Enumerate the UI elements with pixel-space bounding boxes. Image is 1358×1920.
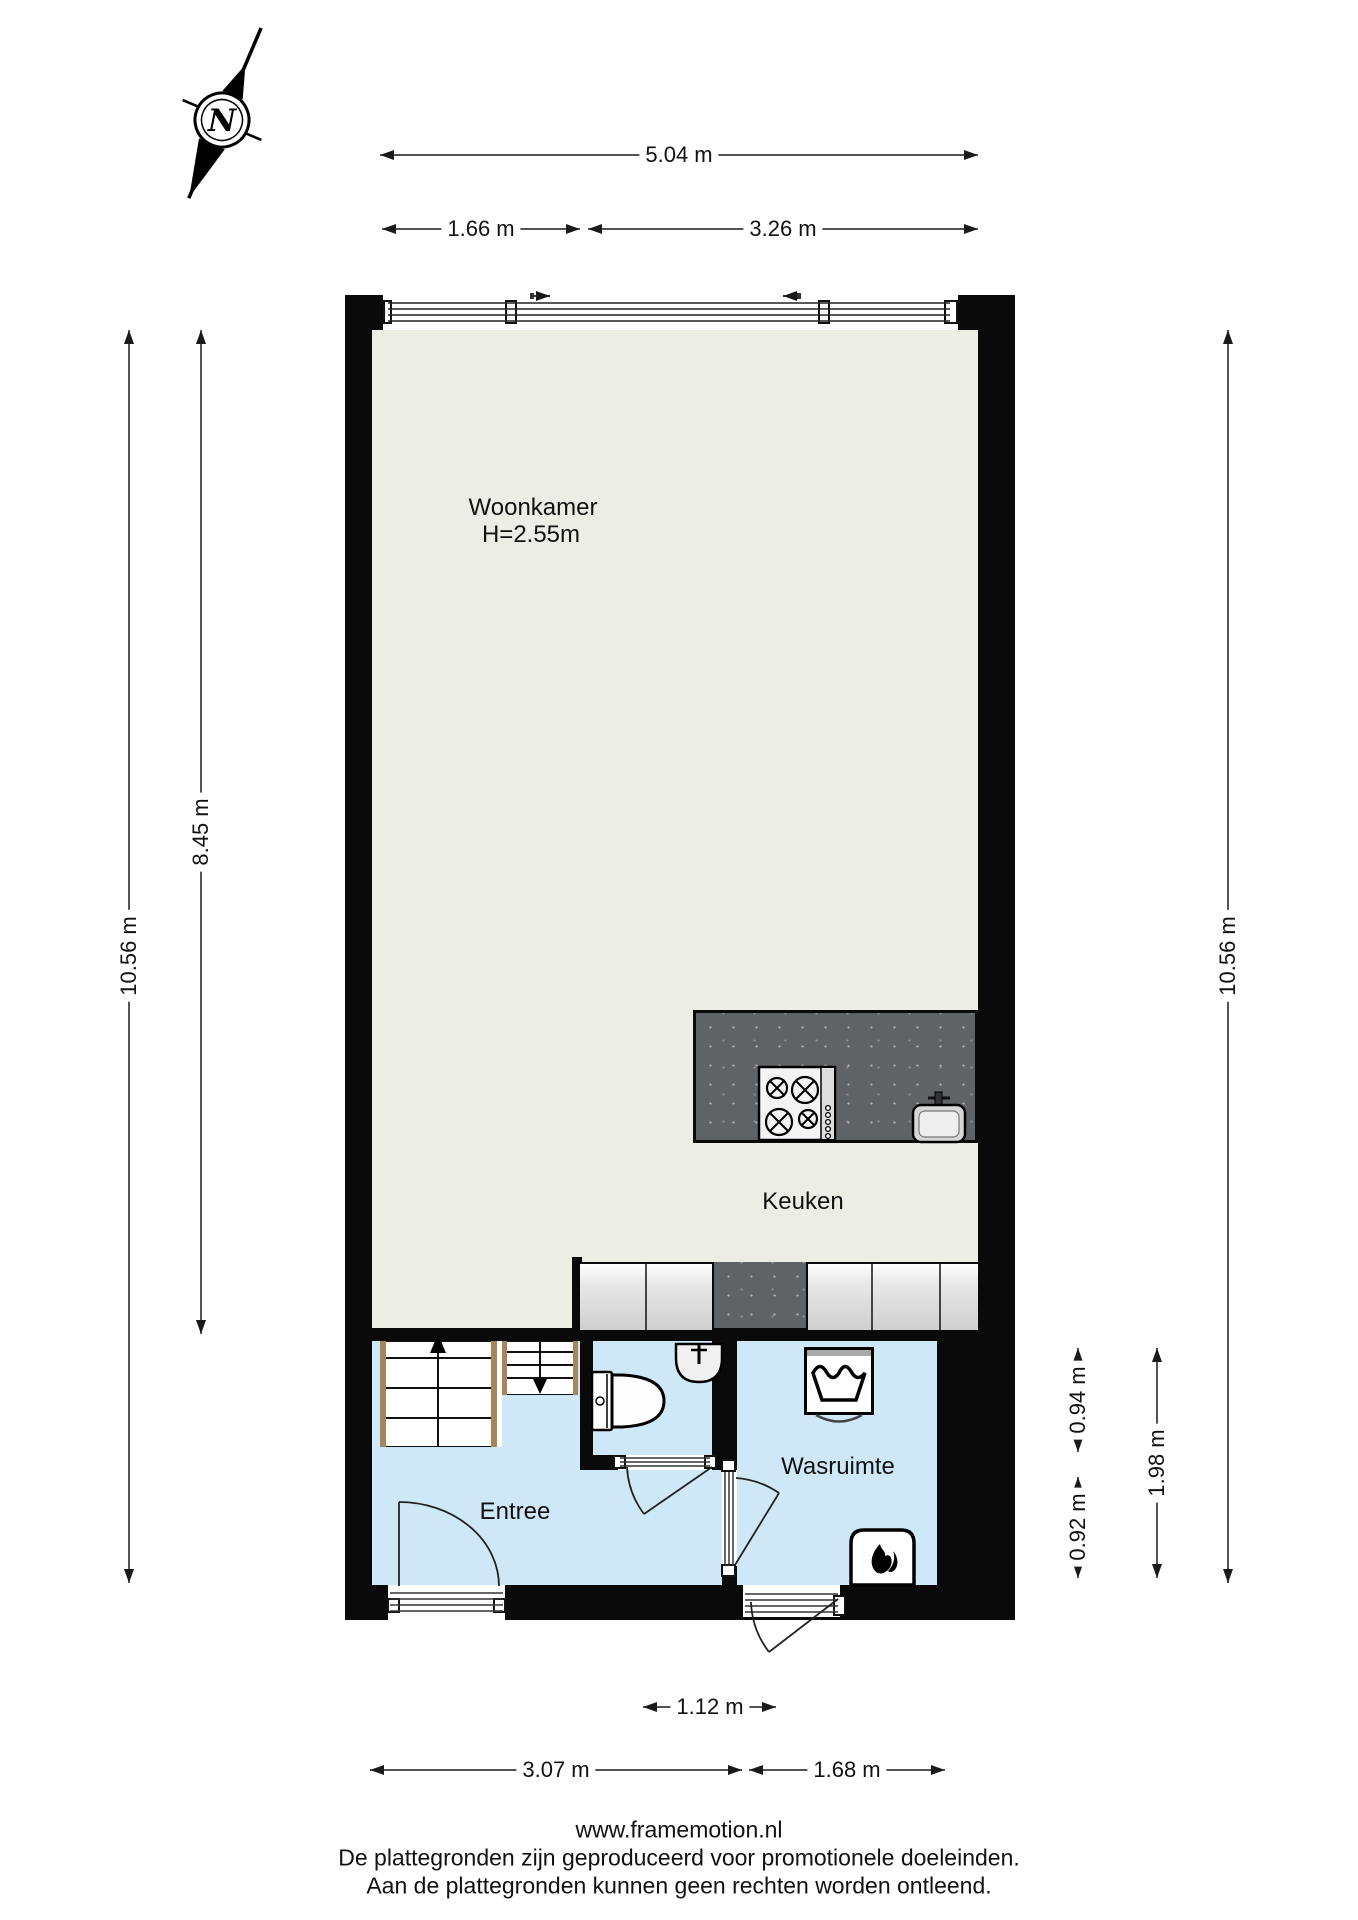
compass-north-label: N bbox=[208, 103, 236, 139]
door-jamb-icon bbox=[704, 1455, 717, 1469]
dim-right-total: 10.56 m bbox=[1215, 910, 1241, 1002]
dim-bottom-center: 1.12 m bbox=[670, 1694, 749, 1720]
back-door-opening bbox=[743, 1585, 840, 1617]
stairs-left-flight bbox=[380, 1341, 497, 1447]
dim-left-inner: 8.45 m bbox=[188, 792, 214, 871]
dim-top-right: 3.26 m bbox=[743, 216, 822, 242]
kitchen-island-counter bbox=[693, 1010, 978, 1143]
room-label-ceiling-height: H=2.55m bbox=[482, 521, 580, 549]
kitchen-counter-dark-cell bbox=[712, 1262, 808, 1330]
dim-bottom-right: 1.68 m bbox=[807, 1757, 886, 1783]
wall-toilet-right bbox=[712, 1341, 737, 1470]
dim-top-total: 5.04 m bbox=[639, 142, 718, 168]
floorplan-page: N Woonkamer H=2.55m Keuken Entree Wasrui… bbox=[0, 0, 1358, 1920]
window-post-icon bbox=[944, 300, 958, 324]
door-jamb-icon bbox=[493, 1598, 506, 1613]
door-jamb-icon bbox=[387, 1598, 400, 1613]
footer-disclaimer2: Aan de plattegronden kunnen geen rechten… bbox=[366, 1873, 991, 1900]
footer-website: www.framemotion.nl bbox=[575, 1817, 782, 1844]
stairs-right-flight bbox=[502, 1341, 578, 1395]
toilet-door-opening bbox=[618, 1455, 712, 1470]
woonkamer-floor bbox=[372, 330, 978, 1328]
dim-right-upper: 0.94 m bbox=[1065, 1360, 1091, 1439]
door-jamb-icon bbox=[833, 1595, 846, 1616]
door-jamb-icon bbox=[613, 1455, 626, 1469]
washing-machine-icon bbox=[804, 1347, 874, 1415]
dim-top-left: 1.66 m bbox=[441, 216, 520, 242]
wall-corner-top-left bbox=[345, 295, 383, 330]
dim-right-lower: 0.92 m bbox=[1065, 1487, 1091, 1566]
room-label-keuken: Keuken bbox=[762, 1188, 843, 1216]
door-jamb-icon bbox=[721, 1459, 736, 1472]
room-label-woonkamer: Woonkamer bbox=[469, 494, 598, 522]
stairs-stringer bbox=[502, 1341, 507, 1395]
wall-left bbox=[345, 295, 372, 1620]
front-door-opening bbox=[388, 1585, 505, 1620]
dim-left-total: 10.56 m bbox=[116, 910, 142, 1002]
stairs-stringer bbox=[380, 1341, 386, 1447]
stairs-stringer bbox=[573, 1341, 578, 1395]
wall-wasruimte-right-block bbox=[937, 1328, 1015, 1620]
door-jamb-icon bbox=[721, 1564, 736, 1577]
room-label-entree: Entree bbox=[480, 1498, 551, 1526]
dim-right-span: 1.98 m bbox=[1144, 1423, 1170, 1502]
window-mullion-icon bbox=[818, 300, 830, 324]
wasruimte-door-opening bbox=[722, 1470, 737, 1566]
window-mullion-icon bbox=[505, 300, 517, 324]
footer-disclaimer1: De plattegronden zijn geproduceerd voor … bbox=[338, 1845, 1020, 1872]
wall-toilet-left bbox=[580, 1341, 593, 1470]
window-band bbox=[383, 296, 958, 329]
window-post-icon bbox=[383, 300, 392, 324]
room-label-wasruimte: Wasruimte bbox=[781, 1453, 895, 1481]
dim-bottom-left: 3.07 m bbox=[516, 1757, 595, 1783]
